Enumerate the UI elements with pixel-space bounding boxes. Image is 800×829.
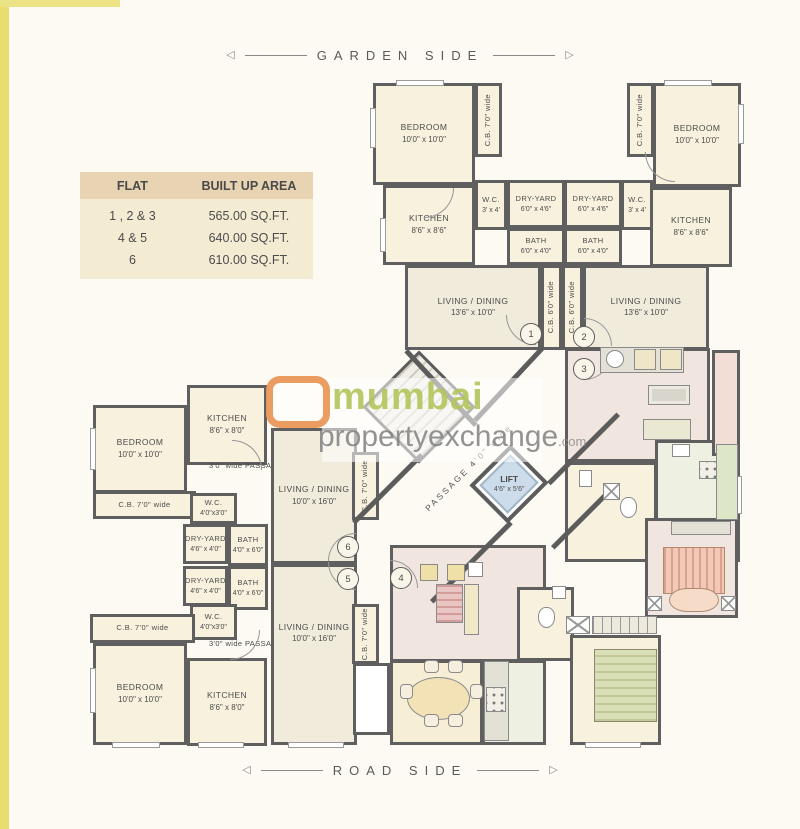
room-dims: 6'0" x 4'6" (578, 205, 609, 214)
furniture-boxwhite (468, 562, 483, 577)
bath-1: BATH6'0" x 4'0" (507, 228, 565, 265)
flat-number-5: 5 (337, 568, 359, 590)
room-label: BEDROOM (117, 682, 164, 693)
room-dims: 4'6" x 4'0" (190, 587, 221, 596)
window (112, 742, 160, 748)
room-dims: 6'0" x 4'0" (578, 247, 609, 256)
room-label: BATH (582, 236, 603, 246)
furniture-sofa (643, 419, 691, 440)
window (198, 742, 244, 748)
window (396, 80, 444, 86)
room-label: C.B. 6'0" wide (567, 281, 577, 333)
furniture-xbox (603, 483, 620, 500)
furniture-chair (424, 714, 439, 727)
furniture-cab (464, 584, 479, 635)
furniture-boxwhite (579, 470, 592, 487)
bedroom-1: BEDROOM10'0" x 10'0" (373, 83, 475, 185)
room-label: LIVING / DINING (611, 296, 682, 307)
cb-balcony-5b: C.B. 7'0" wide (352, 604, 379, 664)
furniture-sofapink (436, 584, 463, 623)
cb-balcony-1: C.B. 7'0" wide (475, 83, 502, 157)
cb-balcony-2: C.B. 7'0" wide (627, 83, 654, 157)
room-label: W.C. (205, 612, 223, 622)
room-dims: 8'6" x 8'6" (412, 226, 447, 237)
bedroom-5: BEDROOM10'0" x 10'0" (93, 643, 187, 745)
door-arc (645, 152, 675, 182)
furniture-toilet (538, 607, 555, 628)
dry-yard-1: DRY-YARD6'0" x 4'6" (507, 180, 565, 228)
arrow-left-icon: ◁ (226, 50, 234, 61)
furniture-chair (424, 660, 439, 673)
flat-cell: 1 , 2 & 3 (80, 209, 185, 223)
table-header-row: FLAT BUILT UP AREA (80, 172, 313, 199)
wc-1: W.C.3' x 4' (475, 180, 507, 230)
watermark-word1: mumbai (332, 376, 484, 419)
living-5: LIVING / DINING10'0" x 16'0" (271, 564, 357, 745)
cb-balcony-5a: C.B. 7'0" wide (90, 614, 195, 643)
arrow-line (477, 770, 539, 771)
scan-edge-top (0, 0, 120, 7)
area-cell: 610.00 SQ.FT. (185, 253, 313, 267)
wc-6: W.C.4'0"x3'0" (190, 493, 237, 524)
furniture-boxbeige (634, 349, 656, 370)
table-body: 1 , 2 & 3 565.00 SQ.FT. 4 & 5 640.00 SQ.… (80, 199, 313, 279)
room-label: BATH (237, 578, 258, 588)
room-label: DRY-YARD (516, 194, 557, 204)
flat-cell: 4 & 5 (80, 231, 185, 245)
door-arc (230, 630, 260, 660)
bedroom-6: BEDROOM10'0" x 10'0" (93, 405, 187, 493)
furniture-toilet (620, 497, 637, 518)
furniture-counter (671, 521, 731, 535)
flat-number-3: 3 (573, 358, 595, 380)
table-row: 4 & 5 640.00 SQ.FT. (80, 227, 313, 249)
cb-balcony-6a: C.B. 7'0" wide (93, 491, 196, 519)
kitchen-5: KITCHEN8'6" x 8'0" (187, 658, 267, 746)
lift-label: LIFT 4'6" x 5'6" (494, 474, 525, 494)
wc-2: W.C.3' x 4' (621, 180, 653, 230)
furniture-chair (448, 714, 463, 727)
cb-balcony-3: C.B. 6'0" wide (541, 265, 562, 350)
room-dims: 8'6" x 8'0" (210, 426, 245, 437)
watermark-suffix: .com (558, 434, 586, 449)
scan-edge-left (0, 0, 9, 829)
room-label: BATH (525, 236, 546, 246)
arrow-line (261, 770, 323, 771)
window (738, 104, 744, 144)
room-label: BATH (237, 535, 258, 545)
room-label: C.B. 7'0" wide (118, 500, 170, 510)
arrow-left-icon: ◁ (242, 765, 250, 776)
lift-name: LIFT (494, 474, 525, 485)
furniture-xbox (566, 616, 590, 634)
window (370, 108, 376, 148)
window (288, 742, 344, 748)
window (90, 428, 96, 470)
furniture-boxwhite (552, 586, 566, 599)
room-dims: 3' x 4' (482, 206, 500, 215)
room-dims: 10'0" x 10'0" (118, 695, 162, 706)
room-dims: 4'0" x 6'0" (233, 546, 264, 555)
furniture-chair (470, 684, 483, 699)
room-dims: 8'6" x 8'0" (210, 703, 245, 714)
header-flat: FLAT (80, 179, 185, 193)
window (380, 218, 386, 252)
area-cell: 565.00 SQ.FT. (185, 209, 313, 223)
furniture-stove (699, 461, 717, 479)
arrow-line (245, 55, 307, 56)
room-label: C.B. 7'0" wide (116, 623, 168, 633)
room-dims: 10'0" x 10'0" (118, 450, 162, 461)
furniture-chair (448, 660, 463, 673)
window (585, 742, 641, 748)
room-label: LIVING / DINING (438, 296, 509, 307)
furniture-tv (648, 385, 690, 405)
room-dims: 6'0" x 4'6" (521, 205, 552, 214)
room-label: W.C. (205, 498, 223, 508)
room-dims: 4'0"x3'0" (200, 509, 227, 518)
furniture-chair (400, 684, 413, 699)
room-dims: 10'0" x 16'0" (292, 497, 336, 508)
garden-side-text: GARDEN SIDE (317, 48, 484, 63)
room-label: W.C. (482, 195, 500, 205)
furniture-chairy (420, 564, 438, 581)
dry-yard-6: DRY-YARD4'6" x 4'0" (183, 524, 228, 564)
furniture-bedfoot (669, 588, 719, 612)
room-label: LIVING / DINING (279, 622, 350, 633)
flat-number-6: 6 (337, 536, 359, 558)
furniture-stove (486, 687, 506, 712)
furniture-chairy (447, 564, 465, 581)
dry-yard-5: DRY-YARD4'6" x 4'0" (183, 566, 228, 606)
room-label: KITCHEN (207, 413, 247, 424)
floor-plan: ◁ GARDEN SIDE ▷ FLAT BUILT UP AREA 1 , 2… (0, 0, 800, 829)
furniture-wardrobe (592, 616, 657, 634)
room-label: C.B. 7'0" wide (483, 94, 493, 146)
flat-area-table: FLAT BUILT UP AREA 1 , 2 & 3 565.00 SQ.F… (80, 172, 313, 279)
duct-1 (353, 663, 390, 735)
room-dims: 10'0" x 10'0" (402, 135, 446, 146)
room-label: BEDROOM (674, 123, 721, 134)
window (90, 668, 96, 713)
furniture-bedpink (663, 547, 725, 594)
bath-2: BATH6'0" x 4'0" (564, 228, 622, 265)
furniture-bedgreen (594, 649, 657, 722)
room-label: DRY-YARD (185, 576, 226, 586)
room-label: BEDROOM (401, 122, 448, 133)
room-dims: 10'0" x 16'0" (292, 634, 336, 645)
dry-yard-2: DRY-YARD6'0" x 4'6" (564, 180, 622, 228)
road-side-label: ◁ ROAD SIDE ▷ (0, 763, 800, 778)
room-label: W.C. (628, 195, 646, 205)
balcony-right (712, 350, 740, 456)
room-label: KITCHEN (207, 690, 247, 701)
area-cell: 640.00 SQ.FT. (185, 231, 313, 245)
arrow-right-icon: ▷ (549, 765, 557, 776)
table-row: 1 , 2 & 3 565.00 SQ.FT. (80, 205, 313, 227)
room-dims: 13'6" x 10'0" (451, 308, 495, 319)
furniture-boxbeige (660, 349, 682, 370)
room-label: DRY-YARD (185, 534, 226, 544)
road-side-text: ROAD SIDE (333, 763, 468, 778)
watermark-word2-text: propertyexchange (318, 420, 558, 453)
room-label: DRY-YARD (573, 194, 614, 204)
furniture-circle (606, 350, 624, 368)
room-label: KITCHEN (671, 215, 711, 226)
bath-6: BATH4'0" x 6'0" (228, 524, 268, 566)
lift-dims: 4'6" x 5'6" (494, 485, 525, 494)
furniture-boxwhite (672, 444, 690, 457)
furniture-xbox (647, 596, 662, 611)
room-dims: 6'0" x 4'0" (521, 247, 552, 256)
kitchen-2: KITCHEN8'6" x 8'6" (650, 187, 732, 267)
room-label: LIVING / DINING (279, 484, 350, 495)
flat-number-1: 1 (520, 323, 542, 345)
room-label: C.B. 7'0" wide (360, 608, 370, 660)
room-label: C.B. 6'0" wide (546, 281, 556, 333)
flat-number-2: 2 (573, 326, 595, 348)
window (664, 80, 712, 86)
furniture-xbox (721, 596, 736, 611)
arrow-line (493, 55, 555, 56)
flat-number-4: 4 (390, 567, 412, 589)
flat-cell: 6 (80, 253, 185, 267)
room-dims: 3' x 4' (628, 206, 646, 215)
room-dims: 4'0" x 6'0" (233, 589, 264, 598)
room-dims: 4'6" x 4'0" (190, 545, 221, 554)
room-dims: 8'6" x 8'6" (674, 228, 709, 239)
garden-side-label: ◁ GARDEN SIDE ▷ (0, 48, 800, 63)
room-dims: 4'0"x3'0" (200, 623, 227, 632)
room-dims: 13'6" x 10'0" (624, 308, 668, 319)
header-area: BUILT UP AREA (185, 179, 313, 193)
furniture-counterg (716, 444, 738, 520)
watermark-word2: propertyexchange.com (318, 420, 586, 454)
arrow-right-icon: ▷ (565, 50, 573, 61)
table-row: 6 610.00 SQ.FT. (80, 249, 313, 271)
room-dims: 10'0" x 10'0" (675, 136, 719, 147)
room-label: BEDROOM (117, 437, 164, 448)
room-label: C.B. 7'0" wide (635, 94, 645, 146)
